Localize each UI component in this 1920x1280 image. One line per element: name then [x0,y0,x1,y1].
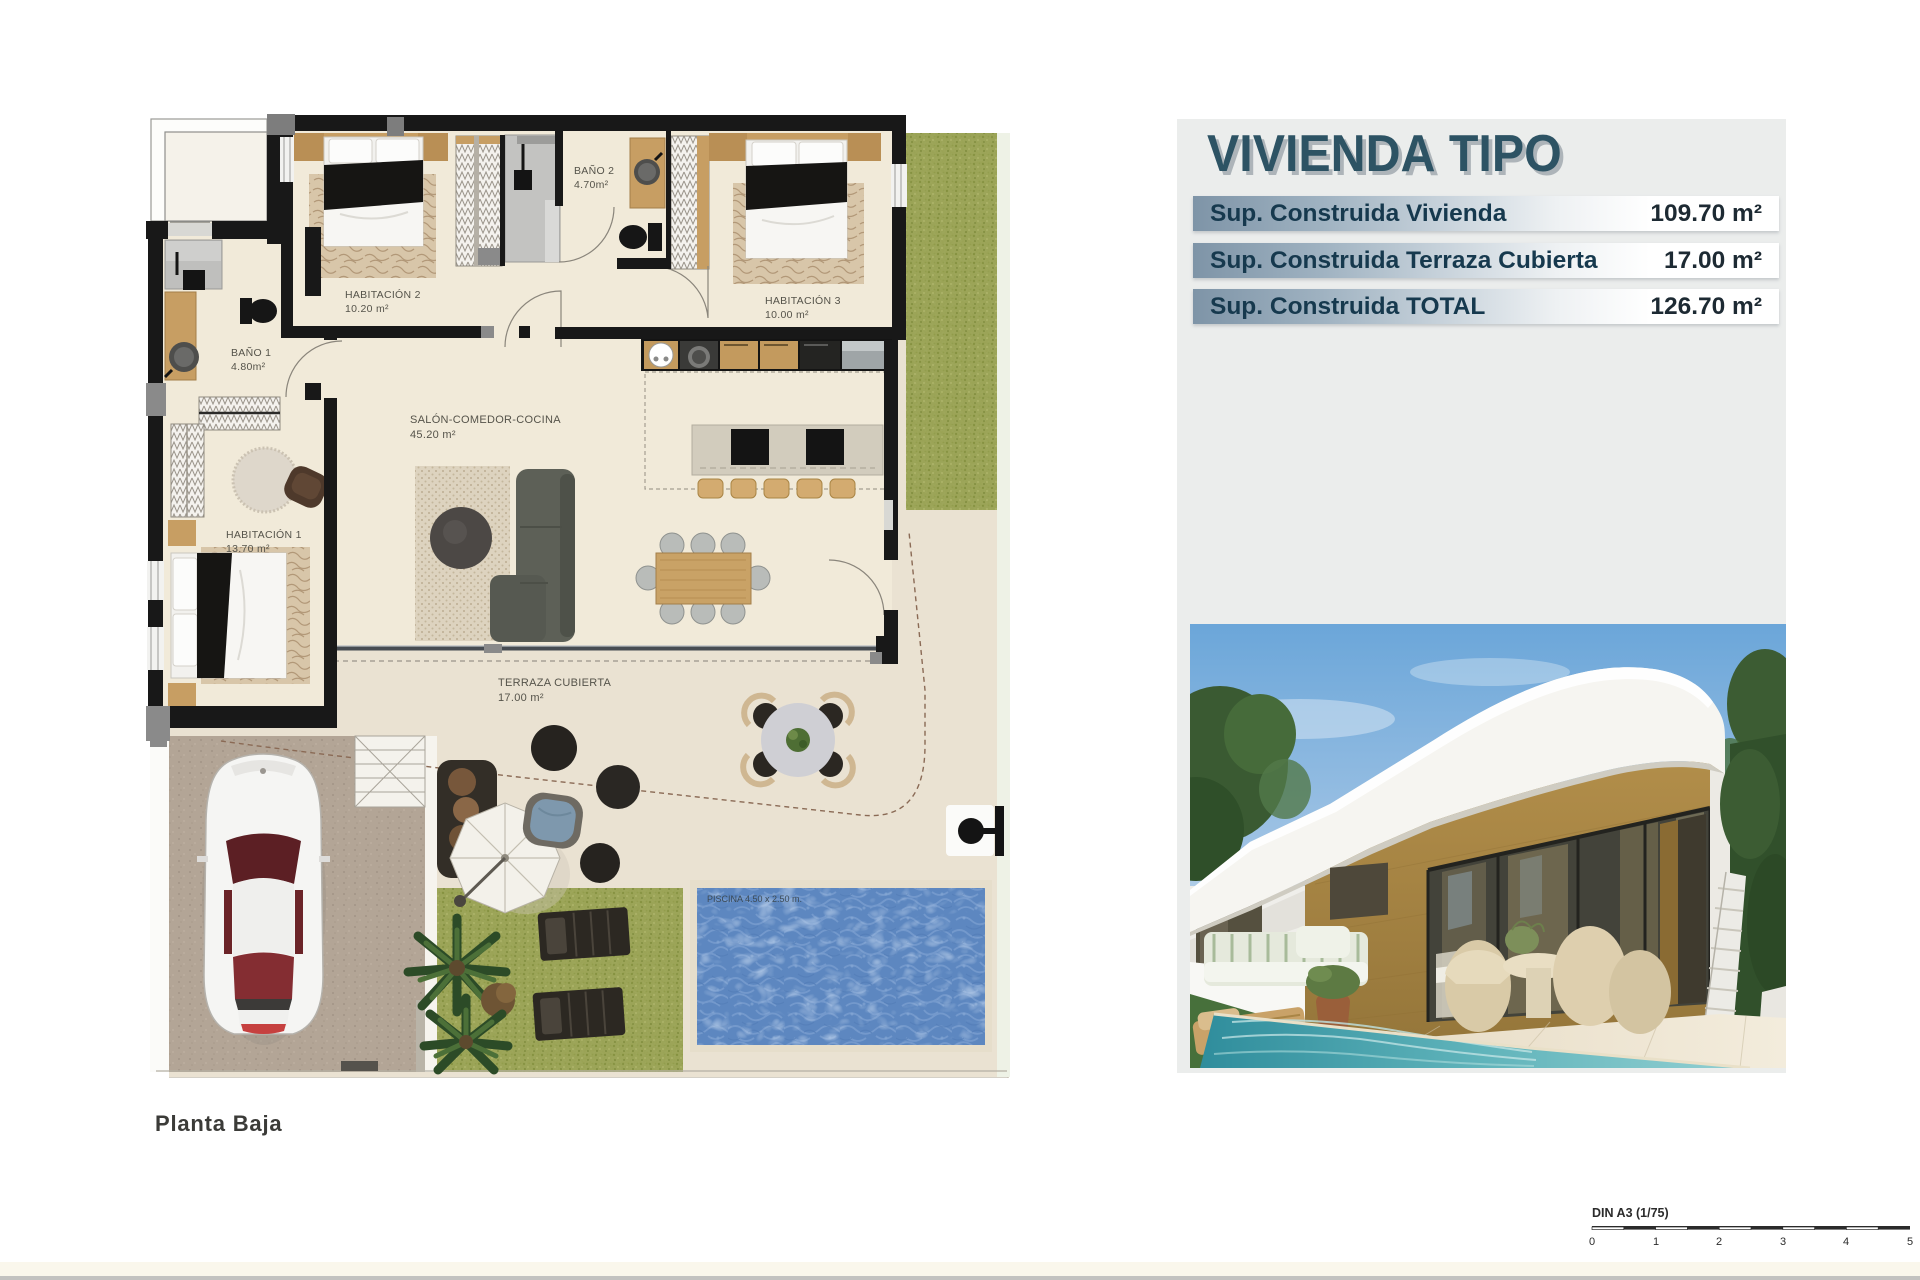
svg-text:4.70m²: 4.70m² [574,179,609,191]
svg-text:BAÑO 1: BAÑO 1 [231,346,271,359]
svg-text:0: 0 [1589,1236,1595,1248]
svg-text:TERRAZA CUBIERTA: TERRAZA CUBIERTA [498,677,612,689]
svg-text:HABITACIÓN 1: HABITACIÓN 1 [226,528,302,541]
svg-text:13.70 m²: 13.70 m² [226,543,270,555]
svg-text:2: 2 [1716,1236,1722,1248]
svg-text:4.80m²: 4.80m² [231,361,266,373]
svg-text:5: 5 [1907,1236,1913,1248]
svg-text:4: 4 [1843,1236,1849,1248]
svg-text:HABITACIÓN 3: HABITACIÓN 3 [765,294,841,307]
svg-text:1: 1 [1653,1236,1659,1248]
svg-text:45.20 m²: 45.20 m² [410,429,456,441]
svg-text:BAÑO 2: BAÑO 2 [574,164,614,177]
svg-text:HABITACIÓN 2: HABITACIÓN 2 [345,288,421,301]
svg-text:17.00 m²: 17.00 m² [498,692,544,704]
svg-text:3: 3 [1780,1236,1786,1248]
svg-text:PISCINA 4.50 x 2.50 m.: PISCINA 4.50 x 2.50 m. [707,894,802,904]
svg-text:10.20 m²: 10.20 m² [345,303,389,315]
svg-text:DIN A3 (1/75): DIN A3 (1/75) [1592,1206,1669,1220]
svg-text:SALÓN-COMEDOR-COCINA: SALÓN-COMEDOR-COCINA [410,413,561,426]
svg-text:10.00 m²: 10.00 m² [765,309,809,321]
